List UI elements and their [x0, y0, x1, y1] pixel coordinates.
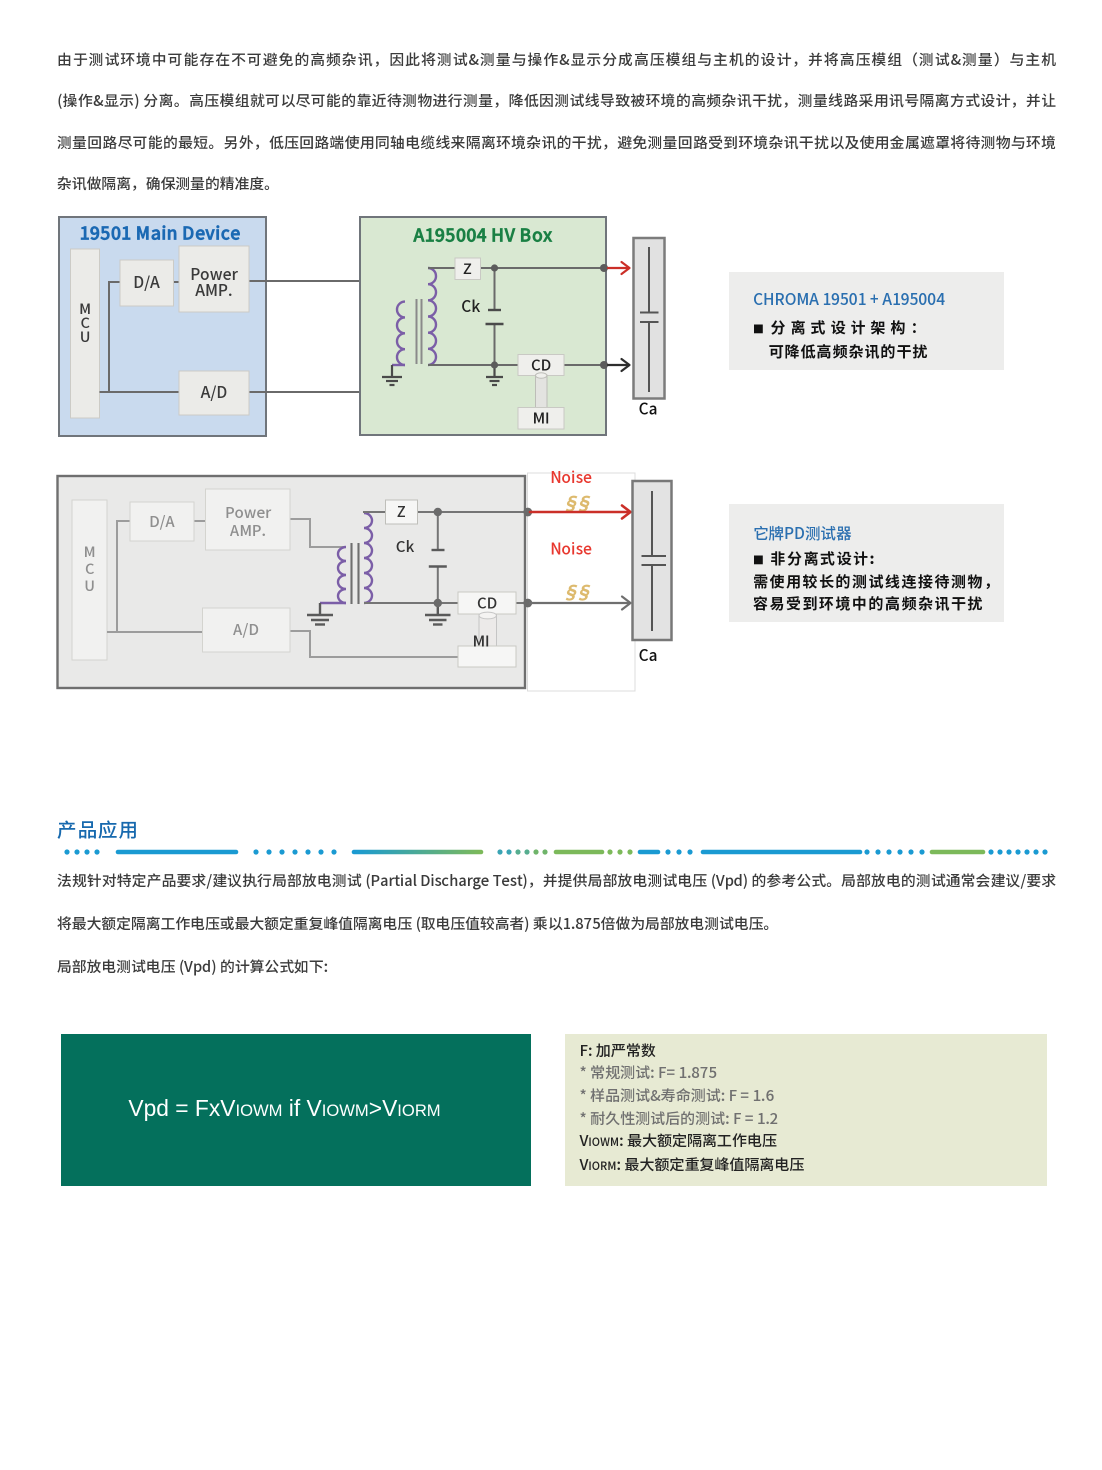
svg-text:MI: MI [472, 631, 489, 652]
svg-text:A/D: A/D [232, 619, 259, 640]
svg-text:Z: Z [397, 501, 406, 522]
svg-text:Noise: Noise [550, 466, 592, 488]
svg-text:Ck: Ck [461, 295, 480, 317]
svg-text:Ca: Ca [639, 644, 658, 666]
svg-text:Z: Z [463, 258, 472, 279]
svg-text:Noise: Noise [550, 538, 592, 560]
svg-text:MI: MI [532, 408, 549, 429]
svg-text:§§: §§ [561, 579, 591, 605]
svg-text:Ck: Ck [396, 536, 415, 557]
svg-text:Ca: Ca [639, 398, 658, 420]
svg-text:D/A: D/A [133, 271, 160, 293]
svg-text:U: U [84, 575, 95, 596]
svg-text:AMP.: AMP. [194, 279, 232, 301]
svg-text:U: U [80, 326, 91, 347]
svg-text:19501 Main Device: 19501 Main Device [80, 221, 241, 246]
svg-text:D/A: D/A [149, 511, 175, 532]
svg-text:A195004 HV Box: A195004 HV Box [412, 223, 553, 248]
svg-text:AMP.: AMP. [229, 520, 266, 541]
svg-text:A/D: A/D [200, 381, 228, 403]
svg-text:CD: CD [477, 593, 497, 614]
